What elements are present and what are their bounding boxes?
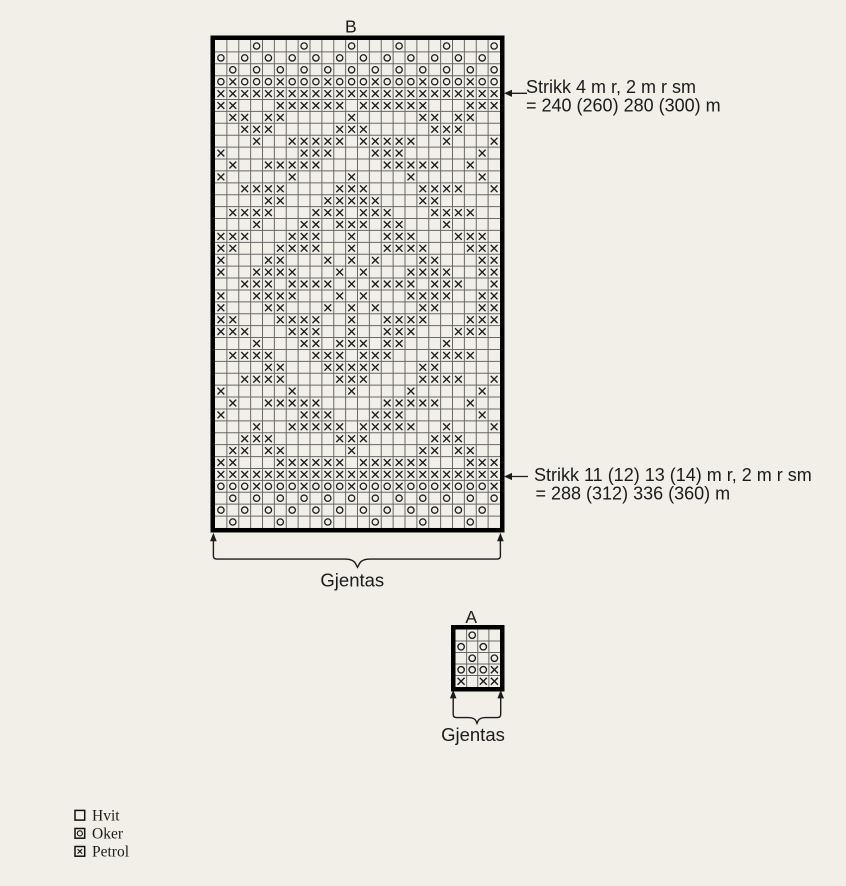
svg-text:Gjentas: Gjentas: [441, 724, 505, 745]
svg-text:Hvit: Hvit: [92, 807, 120, 824]
svg-text:Gjentas: Gjentas: [320, 569, 384, 590]
svg-text:Oker: Oker: [92, 826, 124, 843]
svg-text:B: B: [345, 17, 357, 37]
svg-text:Petrol: Petrol: [92, 844, 129, 861]
svg-text:Strikk 4 m r, 2 m r sm: Strikk 4 m r, 2 m r sm: [526, 77, 696, 97]
svg-text:Strikk 11 (12) 13 (14) m r, 2: Strikk 11 (12) 13 (14) m r, 2 m r sm: [534, 465, 812, 485]
svg-text:A: A: [465, 607, 477, 627]
svg-text:= 240 (260) 280 (300) m: = 240 (260) 280 (300) m: [526, 95, 721, 115]
svg-text:= 288 (312) 336 (360) m: = 288 (312) 336 (360) m: [536, 483, 731, 503]
